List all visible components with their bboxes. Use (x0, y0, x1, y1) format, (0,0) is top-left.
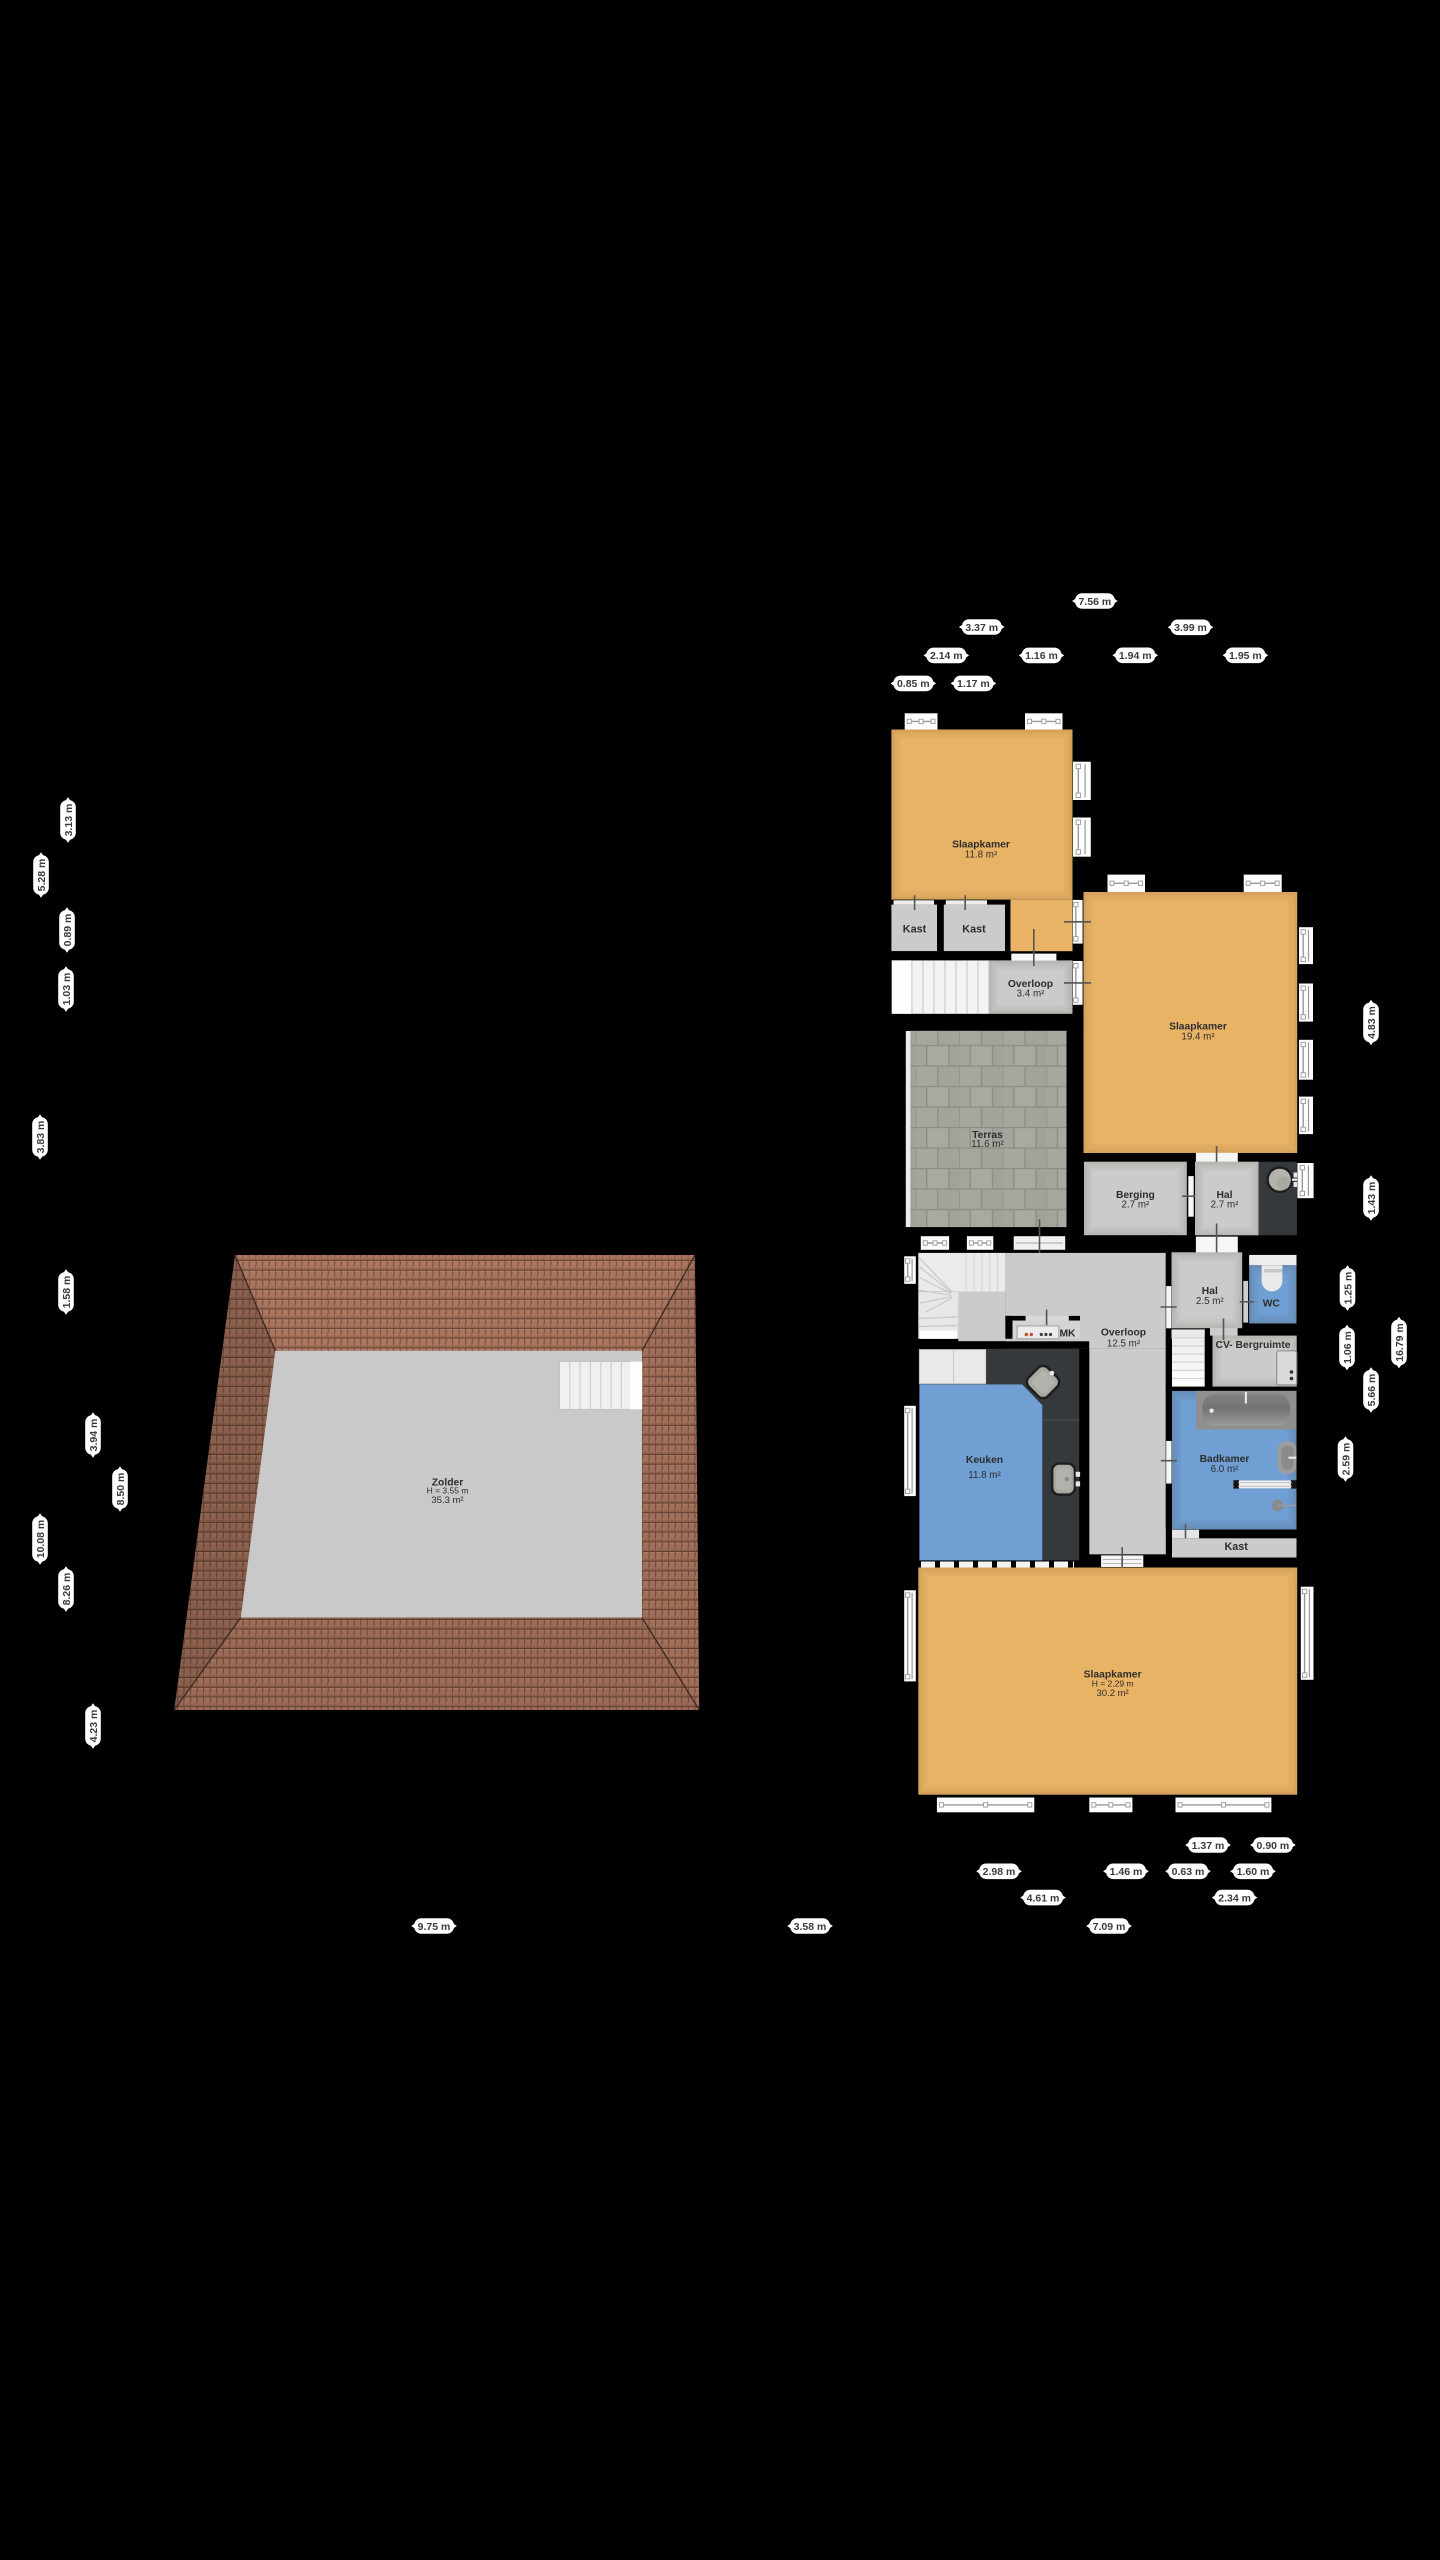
svg-text:1.95 m: 1.95 m (1229, 650, 1262, 662)
svg-text:3.99 m: 3.99 m (1174, 622, 1207, 634)
svg-text:8.26 m: 8.26 m (61, 1573, 73, 1606)
svg-text:1.58 m: 1.58 m (61, 1276, 73, 1309)
svg-text:9.75 m: 9.75 m (418, 1921, 451, 1933)
svg-text:MK: MK (1059, 1329, 1076, 1340)
svg-text:4.83 m: 4.83 m (1366, 1006, 1378, 1039)
svg-text:1.06 m: 1.06 m (1342, 1331, 1354, 1364)
svg-text:19.4 m²: 19.4 m² (1181, 1032, 1215, 1043)
svg-text:1.16 m: 1.16 m (1025, 650, 1058, 662)
svg-text:Kast: Kast (1224, 1541, 1248, 1553)
svg-text:H = 3.55 m: H = 3.55 m (427, 1486, 469, 1496)
svg-text:30.2 m²: 30.2 m² (1096, 1688, 1128, 1699)
svg-text:1.60 m: 1.60 m (1237, 1866, 1270, 1878)
svg-text:3.37 m: 3.37 m (965, 622, 998, 634)
svg-text:WC: WC (1263, 1299, 1281, 1310)
svg-text:2.14 m: 2.14 m (930, 650, 963, 662)
svg-text:H = 2.29 m: H = 2.29 m (1092, 1679, 1134, 1689)
svg-text:7.56 m: 7.56 m (1079, 596, 1112, 608)
svg-text:16.79 m: 16.79 m (1394, 1323, 1406, 1362)
svg-text:0.89 m: 0.89 m (62, 914, 74, 947)
svg-text:11.6 m²: 11.6 m² (971, 1139, 1004, 1150)
svg-text:7.09 m: 7.09 m (1093, 1921, 1126, 1933)
svg-text:11.8 m²: 11.8 m² (965, 850, 998, 861)
svg-text:CV- Bergruimte: CV- Bergruimte (1216, 1340, 1291, 1351)
svg-text:2.5 m²: 2.5 m² (1196, 1296, 1225, 1307)
svg-text:5.28 m: 5.28 m (36, 859, 48, 892)
svg-text:3.13 m: 3.13 m (63, 804, 75, 837)
svg-text:Overloop: Overloop (1101, 1328, 1146, 1339)
svg-text:35.3 m²: 35.3 m² (431, 1495, 463, 1506)
svg-text:6.0 m²: 6.0 m² (1211, 1464, 1240, 1475)
svg-text:Kast: Kast (962, 924, 986, 936)
svg-text:1.43 m: 1.43 m (1366, 1182, 1378, 1215)
svg-text:1.03 m: 1.03 m (61, 973, 73, 1006)
svg-text:1.25 m: 1.25 m (1342, 1272, 1354, 1305)
svg-text:2.7 m²: 2.7 m² (1122, 1199, 1151, 1210)
svg-text:2.59 m: 2.59 m (1340, 1443, 1352, 1476)
svg-text:2.7 m²: 2.7 m² (1211, 1199, 1240, 1210)
svg-text:0.63 m: 0.63 m (1172, 1866, 1205, 1878)
svg-text:0.85 m: 0.85 m (897, 678, 930, 690)
svg-text:8.50 m: 8.50 m (115, 1473, 127, 1506)
svg-text:4.23 m: 4.23 m (88, 1710, 100, 1743)
svg-text:0.90 m: 0.90 m (1257, 1840, 1290, 1852)
svg-text:1.94 m: 1.94 m (1119, 650, 1152, 662)
svg-text:4.61 m: 4.61 m (1027, 1892, 1060, 1904)
svg-text:5.66 m: 5.66 m (1366, 1374, 1378, 1407)
svg-text:2.34 m: 2.34 m (1218, 1892, 1251, 1904)
svg-text:2.98 m: 2.98 m (983, 1866, 1016, 1878)
svg-text:Kast: Kast (903, 924, 927, 936)
svg-text:3.58 m: 3.58 m (794, 1921, 827, 1933)
svg-text:11.8 m²: 11.8 m² (968, 1470, 1001, 1481)
svg-text:3.83 m: 3.83 m (35, 1121, 47, 1154)
svg-text:1.46 m: 1.46 m (1110, 1866, 1143, 1878)
svg-text:Keuken: Keuken (966, 1455, 1003, 1466)
svg-text:3.94 m: 3.94 m (88, 1419, 100, 1452)
svg-text:3.4 m²: 3.4 m² (1017, 988, 1046, 999)
svg-text:10.08 m: 10.08 m (35, 1520, 47, 1559)
svg-text:1.17 m: 1.17 m (957, 678, 990, 690)
svg-text:1.37 m: 1.37 m (1192, 1840, 1225, 1852)
svg-text:12.5 m²: 12.5 m² (1107, 1338, 1141, 1349)
